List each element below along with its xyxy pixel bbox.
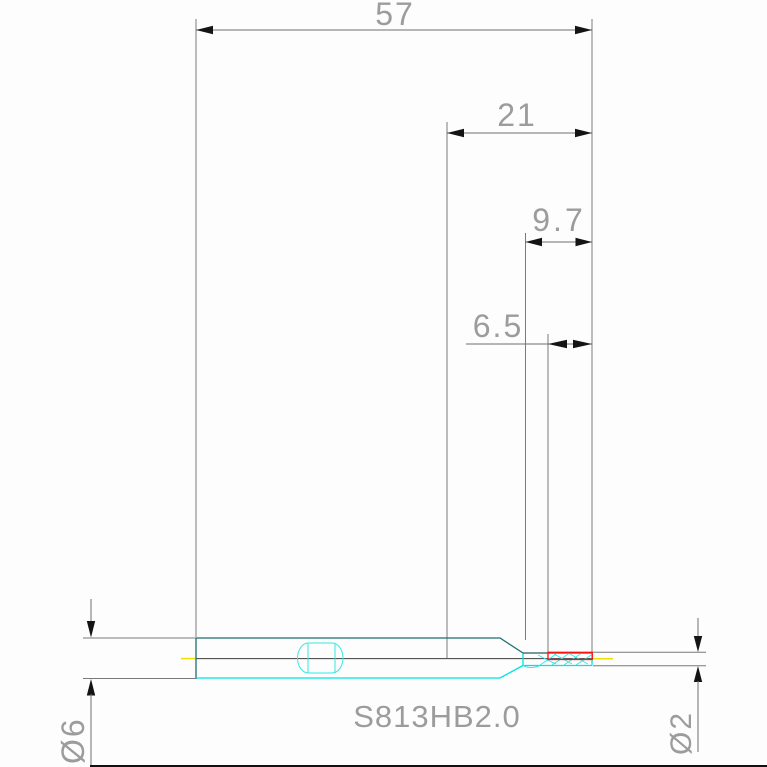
shank-bottom-edge — [196, 666, 523, 679]
arrowhead-down-icon — [694, 636, 702, 652]
arrowhead-left-icon — [196, 26, 213, 34]
dim-label-head-length: 21 — [497, 97, 537, 133]
tool-dimension-drawing: 57 21 9.7 6.5 Ø6 — [0, 0, 767, 767]
dimension-shank-diameter: Ø6 — [55, 599, 197, 766]
dim-label-taper-length: 9.7 — [532, 202, 585, 238]
arrowhead-right-icon — [576, 238, 593, 246]
arrowhead-left-icon — [526, 238, 543, 246]
arrowhead-right-icon — [575, 129, 592, 137]
dim-label-cutting-diameter: Ø2 — [665, 711, 698, 755]
arrowhead-up-icon — [694, 666, 702, 682]
arrowhead-right-icon — [575, 26, 592, 34]
dimension-cutting-diameter: Ø2 — [593, 618, 706, 755]
arrowhead-left-icon — [447, 129, 464, 137]
cross-hole-outline — [298, 643, 344, 673]
dim-label-flute-length: 6.5 — [473, 308, 523, 344]
dimension-flute-length: 6.5 — [466, 308, 592, 652]
shank-cross-hole — [298, 643, 344, 673]
shank-top-edge — [196, 638, 523, 653]
arrowhead-up-icon — [87, 679, 95, 696]
arrowhead-left-icon — [548, 340, 567, 348]
cad-drawing-canvas: 57 21 9.7 6.5 Ø6 — [0, 0, 767, 767]
dimension-head-length: 21 — [447, 97, 592, 658]
part-number-label: S813HB2.0 — [353, 699, 521, 734]
dim-label-overall-length: 57 — [375, 0, 415, 32]
arrowhead-right-icon — [573, 340, 592, 348]
dimension-taper-length: 9.7 — [526, 202, 593, 640]
dim-label-shank-diameter: Ø6 — [55, 717, 91, 764]
arrowhead-down-icon — [87, 621, 95, 638]
